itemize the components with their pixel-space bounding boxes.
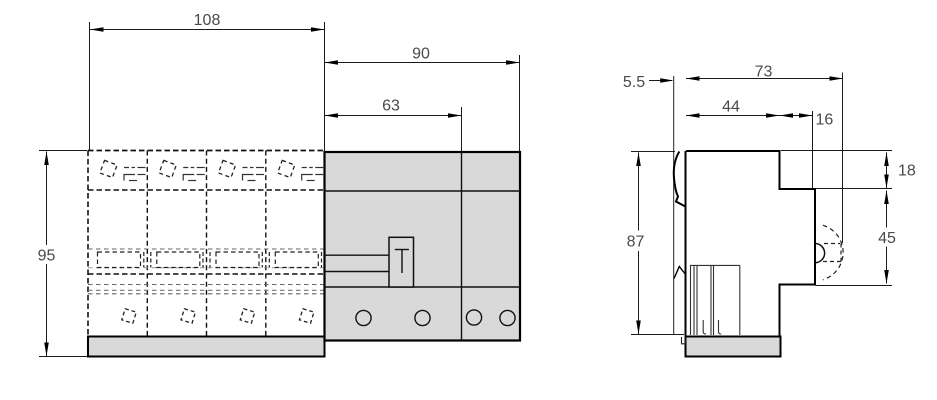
svg-text:108: 108 [194,12,221,29]
svg-text:44: 44 [722,99,740,116]
svg-text:95: 95 [38,248,56,265]
svg-text:87: 87 [627,234,645,251]
svg-text:16: 16 [816,112,834,129]
svg-text:63: 63 [382,98,400,115]
svg-text:18: 18 [898,163,916,180]
svg-text:73: 73 [755,64,773,81]
svg-text:5.5: 5.5 [623,74,645,91]
svg-text:90: 90 [412,46,430,63]
svg-text:45: 45 [878,230,896,247]
